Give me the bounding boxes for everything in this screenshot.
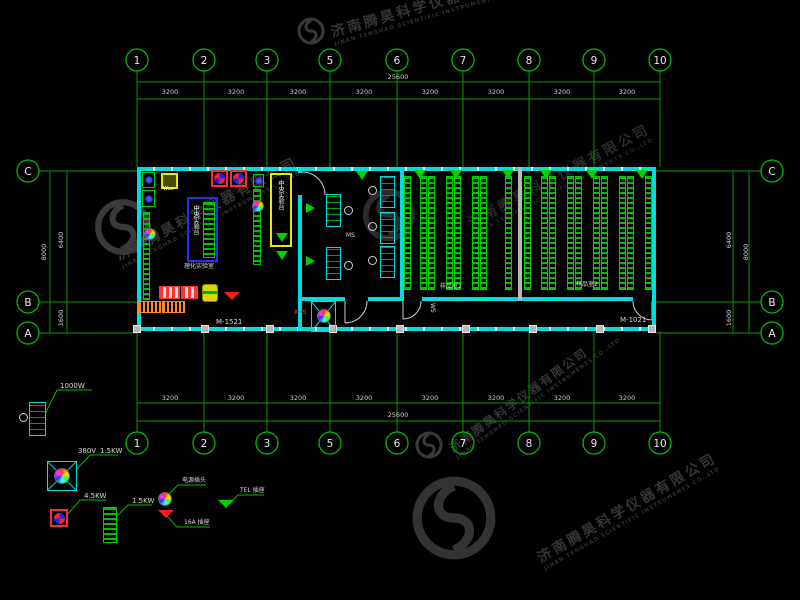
axis-label: 8 [526,438,533,450]
axis-label: 10 [653,55,666,67]
balance-table [181,286,198,299]
marker-triangle [224,292,240,300]
legend-plug-icon [158,492,172,506]
axis-label: 6 [394,55,401,67]
legend-label: 1.5KW [100,448,122,455]
axis-label: B [768,297,775,309]
axis-label: A [24,328,32,340]
dim-label: 3200 [162,88,179,96]
stool [368,256,377,265]
legend-socket-icon [158,510,174,518]
axis-label: 6 [394,438,401,450]
axis-label: C [768,166,775,178]
axis-label: 9 [591,55,598,67]
storage-rack [472,176,479,290]
axis-label: 9 [591,438,598,450]
wall-fan-icon [636,170,648,179]
axis-label: 5 [327,438,334,450]
storage-rack [645,176,652,290]
axis-label: 7 [460,55,467,67]
wall-corridor [368,297,403,301]
fume-hood [211,170,228,187]
wall-fan-icon [306,203,315,213]
stool [344,206,353,215]
wall-bench [143,212,150,300]
axis-label: 8 [526,55,533,67]
side-bench [380,246,395,278]
dim-label: 3200 [356,88,373,96]
axis-label: 3 [264,438,271,450]
fan-icon [233,173,244,184]
dim-label: 3200 [422,394,439,402]
legend-knob [19,413,28,422]
legend-device-1000w [29,402,46,436]
wall-fan-icon [306,256,315,266]
axis-label: 7 [460,438,467,450]
radiator [138,301,161,313]
wall-fan-icon [356,171,368,180]
column-marker [648,325,656,333]
wall-partition-3 [518,167,522,301]
legend-tel-icon [218,500,234,508]
radiator [162,301,185,313]
dim-label: 3200 [488,394,505,402]
stool [368,222,377,231]
legend-label: 380V [78,448,96,455]
heater-box: Wax [161,173,178,189]
cad-floorplan-canvas: 济南腾昊科学仪器有限公司 JINAN TENGHAO SCIENTIFIC IN… [0,0,800,600]
axis-label: C [24,166,31,178]
legend-label: 4.5KW [84,493,106,500]
storage-rack [446,176,453,290]
storage-rack [428,176,435,290]
storage-rack [575,176,582,290]
balance-table [159,286,180,299]
column-marker [396,325,404,333]
fan-icon [144,228,156,240]
wall-fan-icon [414,170,426,179]
equipment-box [142,172,155,188]
room-label: 样品室2 [576,282,598,288]
legend-heater [50,509,68,527]
equipment-box [142,190,155,207]
storage-rack [593,176,600,290]
storage-rack [619,176,626,290]
axis-label: 1 [134,438,141,450]
dim-label: 1600 [57,310,65,327]
dim-label: 3200 [488,88,505,96]
fan-icon [252,200,264,212]
room-label: WS [429,303,435,313]
axis-label: 10 [653,438,666,450]
legend-label: 1.5KW [132,498,154,505]
room-label: 样品室1 [440,284,462,290]
legend-label: 1000W [60,383,85,390]
door-label: M-1021 [620,317,646,324]
wall-right [652,167,656,331]
axis-label: 2 [201,55,208,67]
fan-icon [54,468,70,484]
axis-label: 3 [264,55,271,67]
column-marker [133,325,141,333]
stool [344,261,353,270]
dim-label: 3200 [554,88,571,96]
bench-hatch [203,202,215,258]
storage-rack [404,176,411,290]
fan-icon [317,309,331,323]
air-unit-label: XHS [294,309,306,316]
storage-rack [601,176,608,290]
axis-label: B [24,297,31,309]
fan-icon [145,195,153,203]
equipment-box [253,174,264,187]
storage-rack [505,176,512,290]
cart-stripe [203,291,217,294]
legend-rack [103,507,117,543]
dim-label: 3200 [162,394,179,402]
storage-rack [549,176,556,290]
storage-rack [420,176,427,290]
side-bench [326,247,341,280]
fume-hood [230,170,247,187]
wall-fan-icon [502,170,514,179]
dim-label: 3200 [228,394,245,402]
dim-label: 1600 [725,310,733,327]
central-bench: 中央实验台 [187,197,218,262]
column-marker [201,325,209,333]
vent-icon [276,251,288,260]
storage-rack [524,176,531,290]
axis-label: 2 [201,438,208,450]
dim-label: 3200 [356,394,373,402]
side-bench [380,212,395,244]
column-marker [266,325,274,333]
dim-label: 3200 [422,88,439,96]
dim-label: 8000 [742,244,750,261]
heater-label: Wax [163,186,174,192]
dim-total: 25600 [388,73,409,81]
column-marker [529,325,537,333]
wall-partition-1 [298,167,302,173]
legend-label: 16A 插座 [184,520,210,526]
dim-label: 3200 [619,88,636,96]
equipment-cart [202,284,218,302]
legend-label: 电源插头 [182,478,206,484]
fan-icon [214,173,225,184]
column-marker [462,325,470,333]
dim-label: 3200 [619,394,636,402]
axis-label: A [768,328,776,340]
dim-total: 25600 [388,411,409,419]
side-bench [326,194,341,227]
storage-rack [541,176,548,290]
axis-label: 5 [327,55,334,67]
dim-label: 3200 [228,88,245,96]
dim-label: 3200 [290,394,307,402]
wall-fan-icon [586,170,598,179]
side-bench [380,176,395,208]
fan-icon [54,513,65,524]
storage-rack [454,176,461,290]
door-label: M-1521 [216,319,242,326]
wall-fan-icon [450,170,462,179]
room-label: 理化实验室 [184,264,214,270]
storage-rack [627,176,634,290]
dim-label: 6400 [57,232,65,249]
central-bench-label: 中央实验台 [277,180,283,210]
stool [368,186,377,195]
axis-label: 1 [134,55,141,67]
fan-icon [145,176,153,184]
wall-fan-icon [540,170,552,179]
dim-label: 6400 [725,232,733,249]
fan-icon [255,177,263,185]
legend-label: TEL 插座 [240,488,265,494]
vent-icon [276,233,288,242]
room-label: MS [346,233,355,239]
dim-label: 3200 [290,88,307,96]
dim-label: 3200 [554,394,571,402]
central-bench-label: 中央实验台 [192,205,198,235]
central-bench-2: 中央实验台 [270,173,292,247]
wall-corridor [422,297,633,301]
dim-label: 8000 [40,244,48,261]
column-marker [596,325,604,333]
storage-rack [480,176,487,290]
storage-rack [567,176,574,290]
